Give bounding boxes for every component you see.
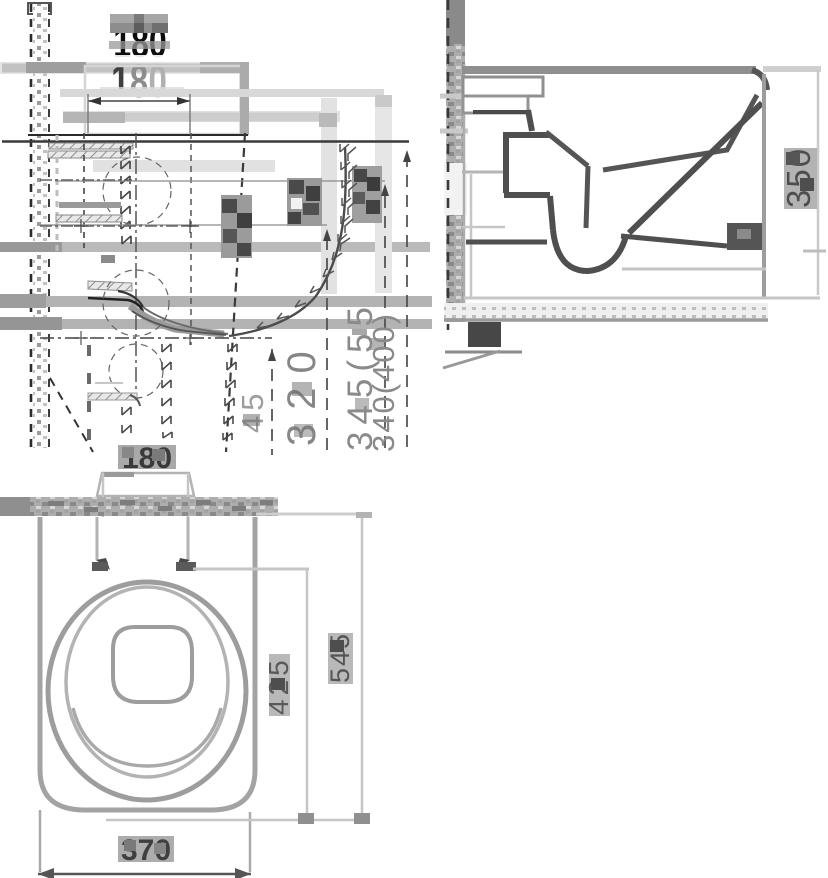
svg-text:1: 1 [111, 57, 129, 107]
svg-text:8: 8 [130, 57, 148, 107]
svg-text:0: 0 [149, 57, 167, 107]
svg-text:545: 545 [325, 632, 355, 683]
svg-text:45: 45 [235, 389, 270, 433]
svg-text:340(400): 340(400) [366, 312, 401, 452]
